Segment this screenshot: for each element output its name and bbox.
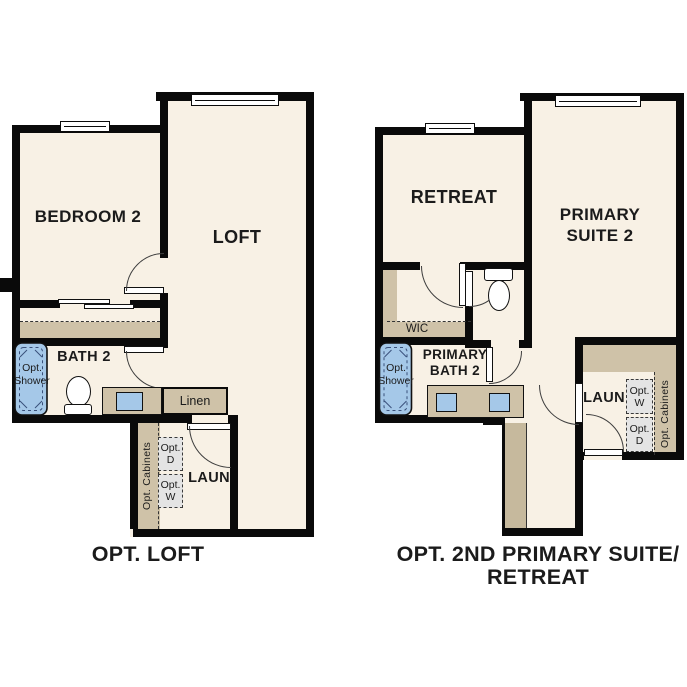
wall [524,93,532,348]
loft-label: LOFT [187,227,287,248]
bedroom2-window [60,121,110,132]
wall [12,300,60,308]
opt-d-line1: Opt. [161,442,181,454]
primary-suite2-label: PRIMARY SUITE 2 [538,204,662,246]
wall-stub [0,278,12,292]
window-line [64,126,106,127]
opt-w-line2: W [635,397,645,409]
opt-shower-line1: Opt. [374,362,418,375]
primary-bath2-line2: BATH 2 [413,363,497,379]
wall [575,452,584,460]
wic-shelf-line [387,321,471,322]
floorplan-canvas: Opt. Shower Linen Opt. Cabinets Opt. D O… [0,0,687,687]
opt-d-line2: D [636,435,644,447]
linen-closet: Linen [162,387,228,415]
primary-bath2-label: PRIMARY BATH 2 [413,347,497,379]
wall [676,337,684,460]
wall [502,528,583,536]
opt-d-line1: Opt. [630,423,650,435]
wall [138,415,192,423]
wall [375,262,420,270]
opt-washer-box: Opt. W [158,474,183,508]
sink-icon [436,393,457,412]
opt-cabinets-label2: Opt. Cabinets [654,372,676,455]
sink-icon [116,392,143,411]
opt-d-line2: D [167,454,175,466]
window-line [559,101,637,102]
window-line [429,128,471,129]
closet-shelf-line [20,321,160,322]
closet-shelf [20,322,160,338]
plan2-caption: OPT. 2ND PRIMARY SUITE/ RETREAT [375,543,687,589]
plan2-caption-line2: RETREAT [375,566,687,589]
opt-washer-box2: Opt. W [626,379,653,414]
laundry-label: LAUN [182,470,236,486]
bath2-label: BATH 2 [48,349,120,365]
retreat-window [425,123,475,134]
plan2-caption-line1: OPT. 2ND PRIMARY SUITE/ [375,543,687,566]
wall [133,529,314,537]
closet-bypass-door [84,304,134,309]
toilet-base-icon [64,404,92,415]
wall [519,340,532,348]
plan1-caption: OPT. LOFT [28,543,268,566]
opt-w-line1: Opt. [161,479,181,491]
primary-suite2-window [555,95,641,107]
opt-dryer-box2: Opt. D [626,417,653,452]
wall [130,300,168,308]
retreat-label: RETREAT [392,187,516,208]
opt-shower-line2: Shower [374,375,418,388]
hall-cabinet-strip [504,423,526,528]
wall [575,337,684,345]
opt-shower-line2: Shower [10,375,54,388]
primary-suite2-line1: PRIMARY [538,204,662,225]
hall-strip-edge [526,423,527,528]
wall [306,92,314,537]
opt-dryer-box: Opt. D [158,437,183,471]
window-line [195,100,275,101]
primary-bath2-line1: PRIMARY [413,347,497,363]
opt-cabinets-label: Opt. Cabinets [136,423,158,529]
laundry2-counter [583,345,676,372]
primary-suite2-line2: SUITE 2 [538,225,662,246]
sink-icon [489,393,510,412]
toilet-icon [66,376,91,407]
opt-shower-label2: Opt. Shower [374,362,418,387]
opt-w-line1: Opt. [630,385,650,397]
wall [676,93,684,345]
wic-label: WIC [395,323,439,336]
linen-label: Linen [180,394,211,408]
wall [12,415,142,423]
laundry2-label: LAUN [578,390,630,406]
toilet-icon [488,280,510,311]
loft-window [191,94,279,106]
bedroom2-label: BEDROOM 2 [18,206,158,227]
wall [502,423,505,528]
opt-w-line2: W [166,491,176,503]
opt-shower-label: Opt. Shower [10,362,54,387]
wall [575,423,583,536]
